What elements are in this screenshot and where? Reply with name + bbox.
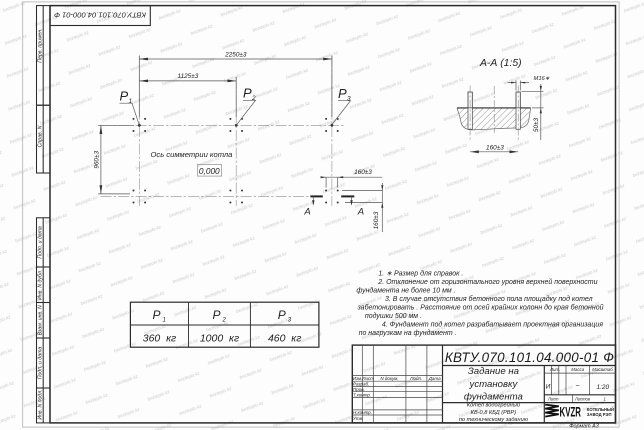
svg-text:Подп.: Подп. — [410, 376, 422, 381]
svg-text:Справ. N: Справ. N — [38, 125, 44, 147]
svg-text:Взам. инв. N: Взам. инв. N — [38, 305, 44, 335]
svg-text:А: А — [357, 206, 364, 217]
svg-text:Подп. и дата: Подп. и дата — [38, 347, 44, 380]
svg-text:Масса: Масса — [571, 367, 585, 372]
svg-text:N докум.: N докум. — [380, 376, 398, 381]
svg-text:3: 3 — [347, 96, 351, 103]
svg-text:P: P — [278, 308, 286, 322]
svg-text:забетонировать . Расстояние от: забетонировать . Расстояние от осей край… — [357, 304, 604, 312]
svg-text:Дата: Дата — [428, 376, 441, 381]
svg-text:360 кг: 360 кг — [143, 332, 177, 344]
svg-text:1:20: 1:20 — [596, 384, 609, 391]
svg-text:фундамента не более 10 мм .: фундамента не более 10 мм . — [356, 287, 455, 295]
svg-text:И: И — [546, 384, 551, 391]
svg-text:P: P — [120, 89, 129, 104]
svg-text:P: P — [338, 86, 347, 101]
svg-text:подушки 500 мм .: подушки 500 мм . — [365, 312, 422, 320]
svg-text:–: – — [575, 383, 580, 390]
svg-text:Т.контр.: Т.контр. — [353, 393, 371, 398]
svg-text:960±3: 960±3 — [93, 150, 100, 168]
svg-text:Формат А3: Формат А3 — [569, 424, 599, 430]
svg-text:1: 1 — [163, 317, 166, 323]
svg-text:КВТУ.070.101.04.000-01 Ф: КВТУ.070.101.04.000-01 Ф — [54, 10, 146, 19]
svg-text:Ось симметрии котла: Ось симметрии котла — [151, 150, 233, 159]
svg-text:Лит.: Лит. — [549, 367, 560, 372]
svg-text:КВТУ.070.101.04.000-01 Ф: КВТУ.070.101.04.000-01 Ф — [445, 350, 614, 365]
svg-text:А: А — [303, 206, 310, 217]
svg-text:ЗАВОД РЭП: ЗАВОД РЭП — [587, 412, 612, 417]
svg-text:460 кг: 460 кг — [268, 332, 302, 344]
svg-text:по нагрузкам на фундамент .: по нагрузкам на фундамент . — [359, 329, 457, 337]
svg-text:2: 2 — [222, 317, 227, 323]
svg-text:Инв. N дубл.: Инв. N дубл. — [38, 270, 44, 300]
svg-text:Листов: Листов — [574, 397, 591, 402]
svg-text:Задание на: Задание на — [468, 366, 519, 377]
svg-text:Подп. и дата: Подп. и дата — [38, 226, 44, 259]
svg-text:2250±3: 2250±3 — [224, 52, 247, 59]
svg-text:P: P — [243, 86, 252, 101]
svg-text:по техническому заданию: по техническому заданию — [459, 417, 529, 423]
svg-text:2. Отклонение от горизонтально: 2. Отклонение от горизонтального уровня … — [377, 278, 597, 286]
svg-text:3. В случае отсутствия бетонно: 3. В случае отсутствия бетонного пола пл… — [385, 295, 593, 303]
svg-text:1000 кг: 1000 кг — [200, 332, 239, 344]
svg-text:50±3: 50±3 — [533, 117, 540, 132]
svg-text:М16∗: М16∗ — [534, 76, 550, 82]
svg-text:1. ∗ Размер для справок .: 1. ∗ Размер для справок . — [378, 269, 463, 277]
svg-text:установку: установку — [469, 379, 519, 390]
svg-text:Перв. примен.: Перв. примен. — [38, 28, 44, 62]
svg-text:160±3: 160±3 — [354, 169, 372, 176]
svg-text:KVZR: KVZR — [560, 403, 582, 419]
svg-text:4. Фундамент под котел разраба: 4. Фундамент под котел разрабатывает про… — [382, 321, 603, 329]
svg-text:Разраб.: Разраб. — [353, 382, 369, 387]
svg-text:1: 1 — [604, 397, 606, 402]
svg-text:1125±3: 1125±3 — [177, 73, 198, 80]
svg-text:Лист: Лист — [547, 397, 559, 402]
svg-text:P: P — [213, 308, 221, 322]
svg-text:160±3: 160±3 — [373, 211, 380, 229]
svg-text:Масштаб: Масштаб — [592, 367, 613, 372]
svg-text:Инв. N подл.: Инв. N подл. — [38, 389, 44, 419]
svg-text:Утв.: Утв. — [353, 416, 363, 421]
svg-text:фундамента: фундамента — [464, 392, 523, 403]
svg-text:Изм.Лист: Изм.Лист — [353, 376, 374, 381]
svg-text:А-А (1:5): А-А (1:5) — [479, 58, 522, 69]
svg-text:160±3: 160±3 — [486, 145, 504, 152]
svg-text:КВ-0,8 КБД (РВР): КВ-0,8 КБД (РВР) — [471, 410, 517, 416]
svg-text:Пров.: Пров. — [353, 387, 365, 392]
svg-text:Котел водогрейный: Котел водогрейный — [467, 402, 520, 409]
svg-text:Н.контр.: Н.контр. — [353, 410, 372, 415]
svg-text:P: P — [153, 308, 161, 322]
svg-text:0,000: 0,000 — [199, 166, 220, 176]
